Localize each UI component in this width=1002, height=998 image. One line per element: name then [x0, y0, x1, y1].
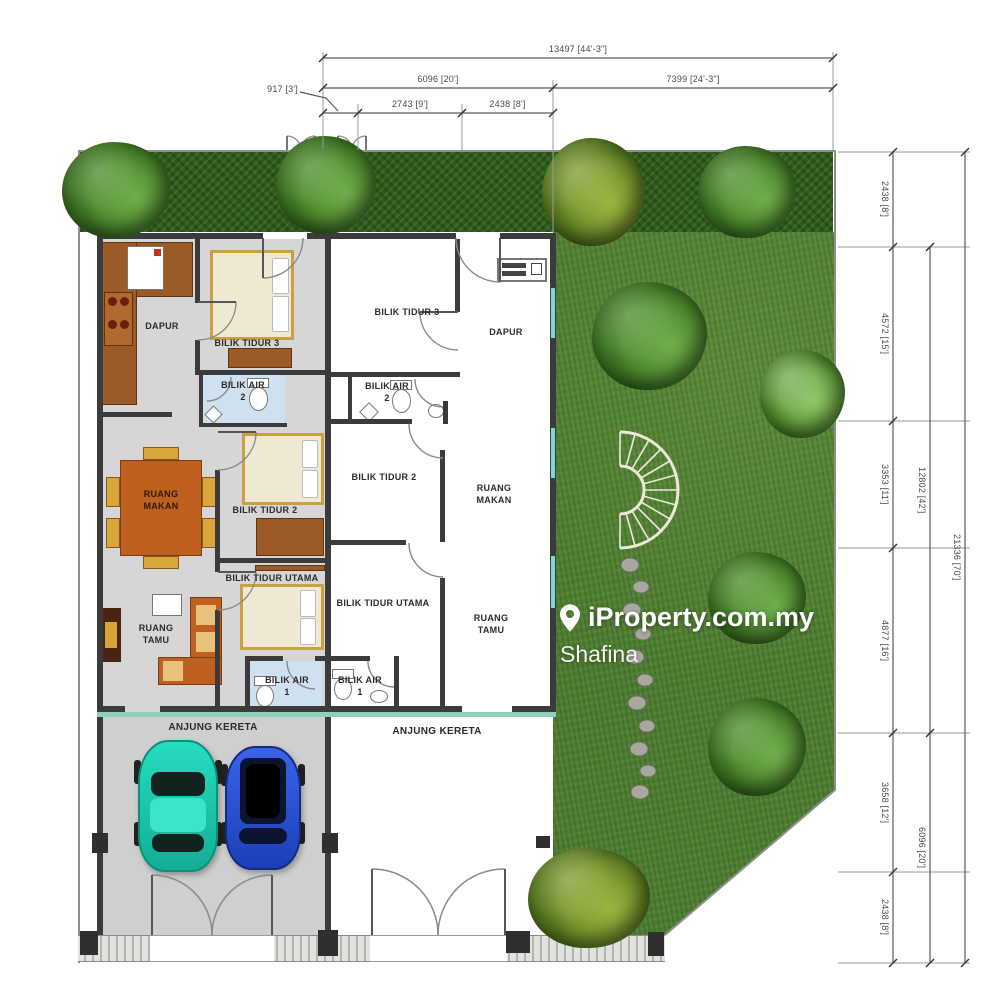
corner-basin — [428, 404, 444, 418]
label-bilik-tidur-3-left: BILIK TIDUR 3 — [197, 337, 297, 349]
pillar — [536, 836, 550, 848]
wall-segment — [203, 423, 287, 427]
label-ruang-makan-right: RUANG MAKAN — [454, 482, 534, 506]
label-ruang-tamu-left: RUANG TAMU — [116, 622, 196, 646]
watermark-brand: iProperty.com.my — [588, 602, 814, 633]
dining-chair — [143, 447, 179, 460]
label-bilik-tidur-utama-left: BILIK TIDUR UTAMA — [216, 572, 328, 584]
label-line: 1 — [247, 686, 327, 698]
window-right-2 — [551, 428, 555, 478]
gate-opening-left — [150, 935, 274, 962]
car-roof — [150, 798, 206, 832]
wall-segment — [97, 412, 172, 417]
pillow — [272, 296, 289, 332]
door-gap-back-right — [456, 233, 500, 239]
pillow — [300, 590, 316, 617]
label-bilik-tidur-3-right: BILIK TIDUR 3 — [357, 306, 457, 318]
dim-right-seg2: 4572 [15'] — [879, 247, 891, 421]
label-bilik-tidur-2-right: BILIK TIDUR 2 — [334, 471, 434, 483]
wall-segment — [245, 656, 283, 661]
dim-left-span: 6096 [20'] — [323, 74, 553, 84]
tree — [708, 698, 806, 796]
dim-right-span: 7399 [24'-3"] — [553, 74, 833, 84]
wall-segment — [215, 470, 220, 572]
dining-chair — [143, 556, 179, 569]
wardrobe-left — [256, 518, 324, 556]
kitchen-hob — [502, 263, 526, 268]
pillow — [272, 258, 289, 294]
label-bilik-air-1-right: BILIK AIR 1 — [322, 674, 398, 698]
dim-right-seg6: 2438 [8'] — [879, 872, 891, 963]
door-gap-back-left — [263, 233, 307, 239]
label-dapur-right: DAPUR — [476, 326, 536, 338]
watermark-agent: Shafina — [560, 641, 814, 668]
dining-chair — [106, 518, 120, 548]
car-windshield — [239, 828, 287, 844]
wall-segment — [440, 450, 445, 542]
sink-tap — [154, 249, 161, 256]
dim-gate2: 2438 [8'] — [462, 99, 553, 109]
pillow — [302, 470, 318, 498]
sofa-cushion — [196, 632, 216, 652]
wall-segment — [195, 370, 331, 375]
dresser-bilik-tidur-3-left — [228, 348, 292, 368]
label-line: BILIK AIR — [247, 674, 327, 686]
carport-wall-right — [325, 712, 331, 935]
dim-right-seg4: 4877 [16'] — [879, 548, 891, 733]
floor-plan: 13497 [44'-3"] 6096 [20'] 7399 [24'-3"] … — [0, 0, 1002, 998]
coffee-table — [152, 594, 182, 616]
stove-burner — [120, 297, 129, 306]
pillow — [300, 618, 316, 645]
watermark: iProperty.com.my Shafina — [560, 602, 814, 668]
tree — [276, 136, 376, 234]
sofa-cushion — [196, 605, 216, 625]
door-gap-front-right — [462, 706, 512, 712]
tree — [698, 146, 796, 238]
dim-right-seg5: 3658 [12'] — [879, 733, 891, 872]
label-ruang-tamu-right: RUANG TAMU — [451, 612, 531, 636]
dining-chair — [202, 477, 216, 507]
dim-total-width: 13497 [44'-3"] — [323, 44, 833, 54]
dim-right-mid-upper: 12802 [42'] — [916, 247, 928, 733]
pillar — [648, 932, 664, 956]
dim-right-seg1: 2438 [8'] — [879, 152, 891, 247]
label-line: RUANG — [121, 488, 201, 500]
kitchen-hob — [502, 271, 526, 276]
label-bilik-tidur-utama-right: BILIK TIDUR UTAMA — [327, 597, 439, 609]
wall-segment — [326, 656, 370, 661]
tree — [592, 282, 707, 390]
wall-segment — [455, 236, 460, 312]
label-line: RUANG — [454, 482, 534, 494]
wall-segment — [215, 610, 220, 708]
door-gap-front-left — [125, 706, 160, 712]
window-right-3 — [551, 556, 555, 608]
stove-burner — [108, 320, 117, 329]
tree — [62, 142, 170, 238]
pillar — [92, 833, 108, 853]
label-line: BILIK AIR — [322, 674, 398, 686]
pillar — [318, 930, 338, 956]
label-bilik-air-2-right: BILIK AIR 2 — [350, 380, 424, 404]
label-dapur-left: DAPUR — [132, 320, 192, 332]
kitchen-sink-right — [531, 263, 542, 275]
lot-boundary-left — [78, 150, 80, 963]
label-line: 2 — [203, 391, 283, 403]
dim-right-total: 21336 [70'] — [951, 152, 963, 963]
wall-segment — [443, 401, 448, 424]
label-line: BILIK AIR — [350, 380, 424, 392]
label-bilik-air-1-left: BILIK AIR 1 — [247, 674, 327, 698]
tree — [760, 350, 845, 438]
label-bilik-air-2-left: BILIK AIR 2 — [203, 379, 283, 403]
label-line: 1 — [322, 686, 398, 698]
label-ruang-makan-left: RUANG MAKAN — [121, 488, 201, 512]
gate-opening-right — [370, 935, 507, 962]
wall-segment — [440, 578, 445, 708]
label-line: TAMU — [451, 624, 531, 636]
dining-chair — [106, 477, 120, 507]
label-line: MAKAN — [121, 500, 201, 512]
stove-burner — [108, 297, 117, 306]
label-line: RUANG — [116, 622, 196, 634]
dim-gate1: 2743 [9'] — [358, 99, 462, 109]
wall-left — [97, 233, 103, 712]
car-rear-window — [152, 834, 204, 852]
label-anjung-kereta-right: ANJUNG KERETA — [377, 726, 497, 738]
label-bilik-tidur-2-left: BILIK TIDUR 2 — [215, 504, 315, 516]
dim-offset: 917 [3'] — [240, 84, 298, 94]
label-line: BILIK AIR — [203, 379, 283, 391]
dining-chair — [202, 518, 216, 548]
wall-segment — [215, 558, 330, 563]
tree — [528, 848, 650, 948]
pillow — [302, 440, 318, 468]
front-grass-strip — [97, 712, 556, 717]
carport-wall-left — [97, 712, 103, 935]
tree — [542, 138, 644, 246]
label-line: MAKAN — [454, 494, 534, 506]
label-anjung-kereta-left: ANJUNG KERETA — [153, 722, 273, 734]
car-roof-box-inner — [246, 764, 280, 818]
pillar — [506, 931, 530, 953]
label-line: 2 — [350, 392, 424, 404]
wall-segment — [195, 233, 200, 303]
label-line: RUANG — [451, 612, 531, 624]
pillar — [80, 931, 98, 955]
wall-party — [325, 233, 331, 712]
pillar — [322, 833, 338, 853]
dresser-utama-left — [255, 565, 325, 571]
sofa-cushion — [163, 661, 183, 681]
label-line: TAMU — [116, 634, 196, 646]
map-pin-icon — [560, 604, 580, 632]
window-right-1 — [551, 288, 555, 338]
dim-right-seg3: 3353 [11'] — [879, 421, 891, 548]
dim-right-mid-lower: 6096 [20'] — [916, 733, 928, 963]
car-windshield — [151, 772, 205, 796]
stove-burner — [120, 320, 129, 329]
wall-segment — [328, 540, 406, 545]
wall-segment — [328, 419, 410, 424]
